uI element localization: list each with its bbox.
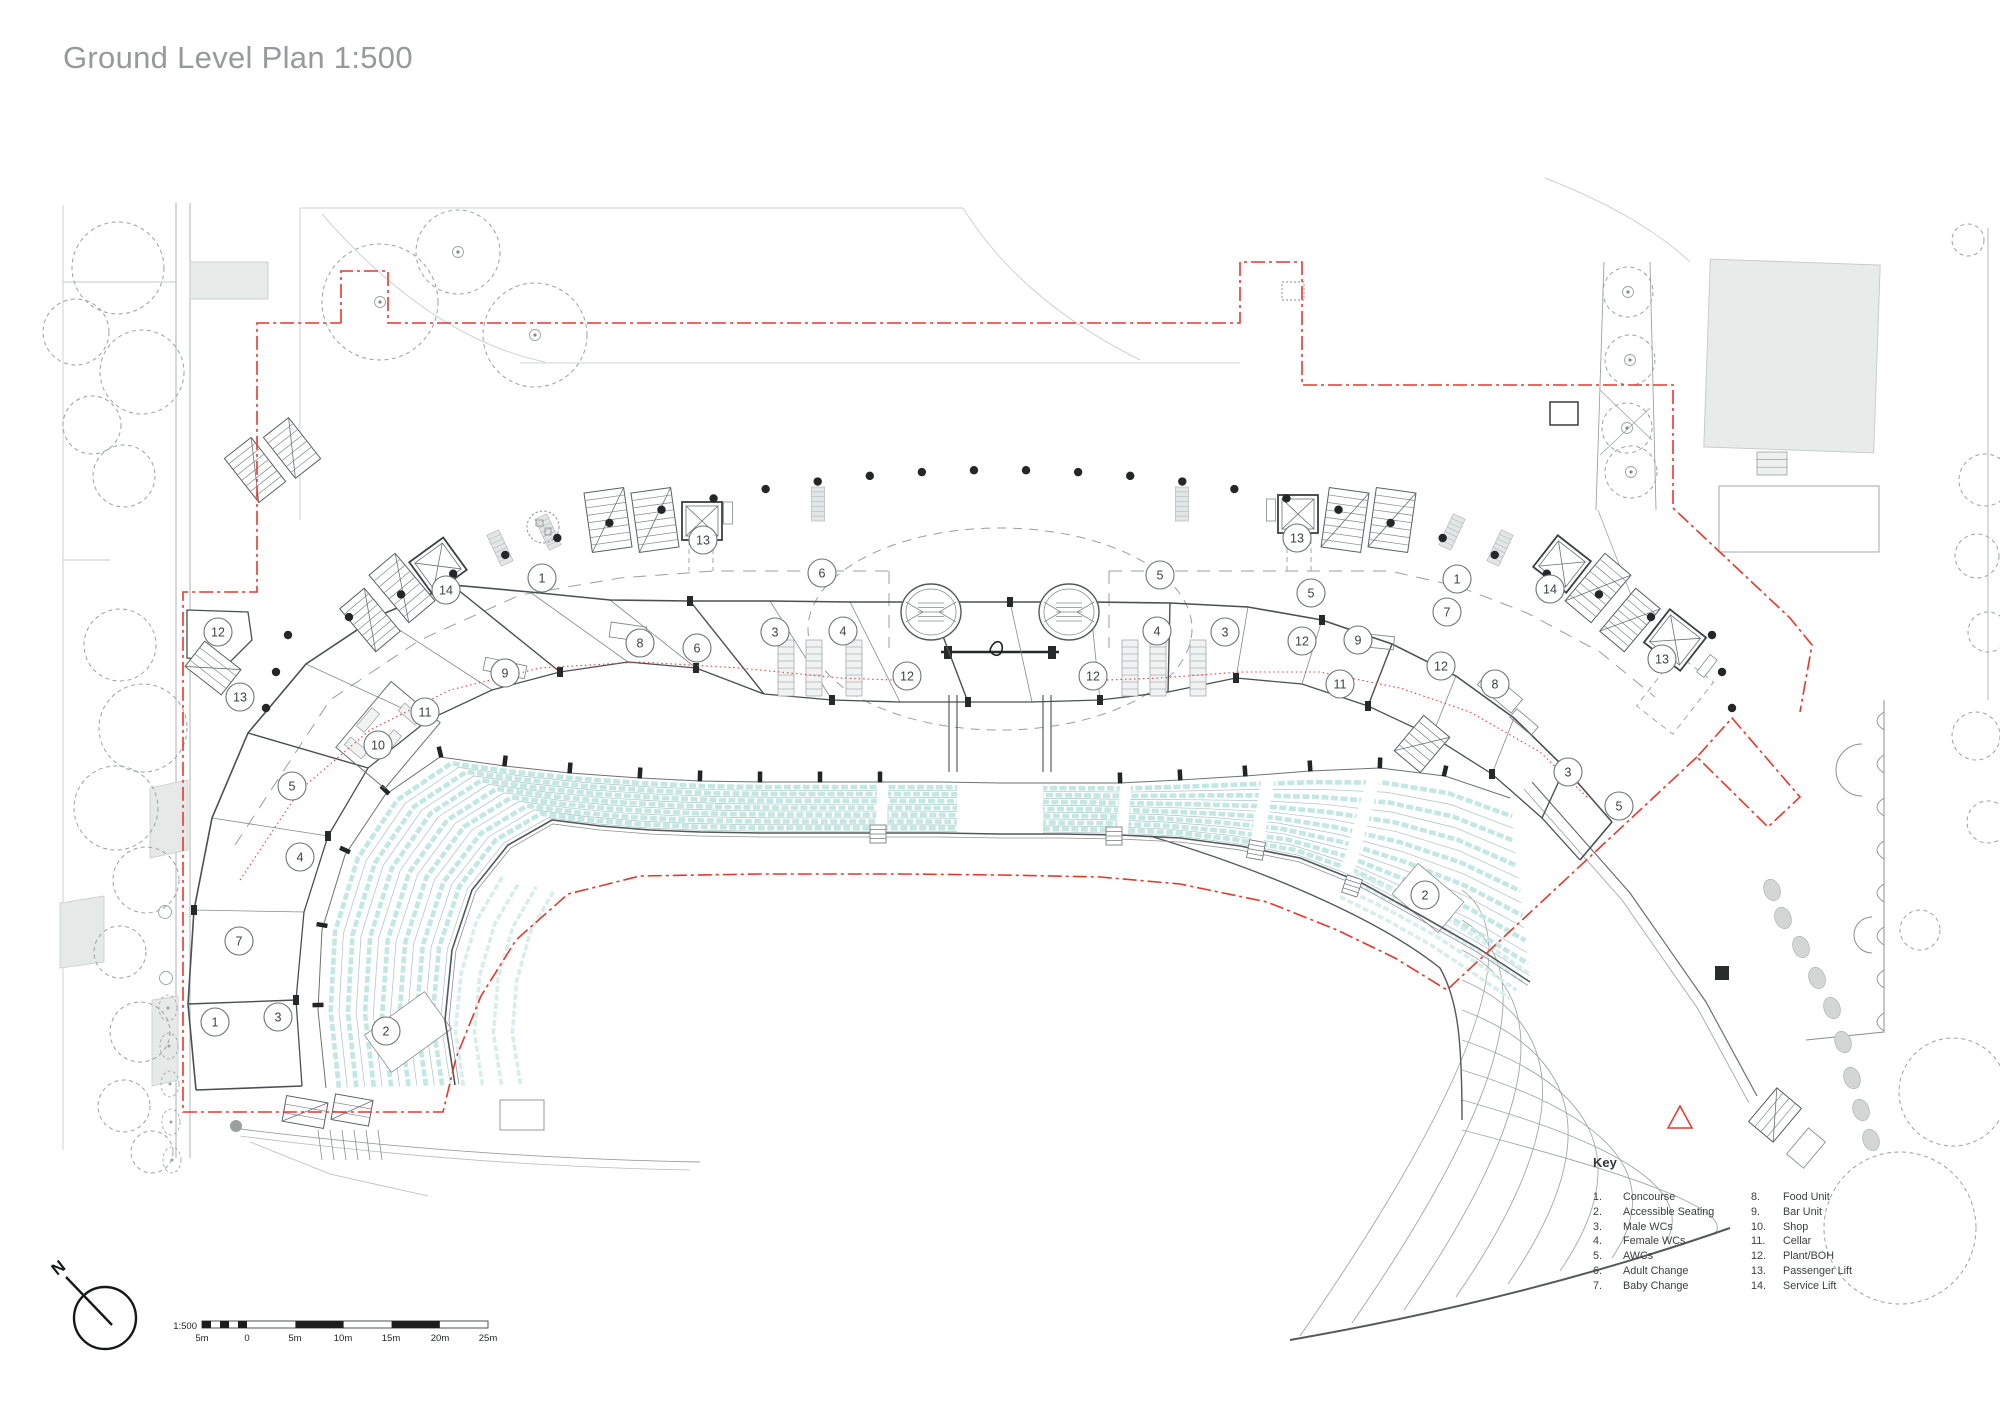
svg-text:9: 9	[502, 666, 509, 680]
key-item-label: Passenger Lift	[1783, 1264, 1893, 1279]
svg-text:12: 12	[1295, 634, 1309, 648]
svg-text:5: 5	[1157, 568, 1164, 582]
plan-marker: 12	[1079, 662, 1107, 690]
north-arrow: N	[48, 1257, 136, 1349]
plan-marker: 12	[893, 662, 921, 690]
key-item-label: Female WCs	[1623, 1234, 1751, 1249]
svg-text:13: 13	[696, 533, 710, 547]
plan-marker: 14	[1536, 575, 1564, 603]
plan-marker: 4	[1143, 617, 1171, 645]
plan-marker: 12	[1427, 652, 1455, 680]
svg-text:13: 13	[1290, 531, 1304, 545]
plan-marker: 5	[1297, 579, 1325, 607]
key-item-num: 10.	[1751, 1220, 1783, 1235]
svg-text:3: 3	[772, 625, 779, 639]
plan-marker: 10	[364, 731, 392, 759]
key-item-num: 12.	[1751, 1249, 1783, 1264]
key-heading: Key	[1593, 1155, 1893, 1170]
svg-text:25m: 25m	[479, 1333, 498, 1344]
key-list: 1.Concourse8.Food Unit2.Accessible Seati…	[1593, 1190, 1893, 1294]
svg-text:5m: 5m	[195, 1333, 208, 1344]
svg-text:8: 8	[637, 636, 644, 650]
key-item-label: AWCs	[1623, 1249, 1751, 1264]
plan-marker: 13	[226, 683, 254, 711]
svg-text:5: 5	[1616, 799, 1623, 813]
svg-text:9: 9	[1355, 633, 1362, 647]
svg-text:0: 0	[244, 1333, 249, 1344]
svg-text:14: 14	[439, 583, 453, 597]
svg-text:2: 2	[1422, 888, 1429, 902]
svg-text:12: 12	[900, 669, 914, 683]
key-item-num: 3.	[1593, 1220, 1623, 1235]
plan-marker: 6	[808, 559, 836, 587]
svg-text:14: 14	[1543, 582, 1557, 596]
svg-text:10: 10	[371, 738, 385, 752]
plan-marker: 8	[1481, 670, 1509, 698]
plan-marker: 4	[286, 843, 314, 871]
svg-text:13: 13	[1655, 652, 1669, 666]
svg-text:5m: 5m	[288, 1333, 301, 1344]
key-item-label: Service Lift	[1783, 1279, 1893, 1294]
plan-marker: 11	[411, 698, 439, 726]
key-item-label: Adult Change	[1623, 1264, 1751, 1279]
svg-text:20m: 20m	[431, 1333, 450, 1344]
plan-marker: 7	[1433, 598, 1461, 626]
key-item-num: 13.	[1751, 1264, 1783, 1279]
svg-text:1: 1	[212, 1015, 219, 1029]
svg-text:6: 6	[694, 641, 701, 655]
plan-marker: 6	[683, 634, 711, 662]
key-item-num: 1.	[1593, 1190, 1623, 1205]
key-item-label: Cellar	[1783, 1234, 1893, 1249]
svg-text:7: 7	[1444, 605, 1451, 619]
plan-marker: 12	[204, 618, 232, 646]
plan-marker: 12	[1288, 627, 1316, 655]
key-item-num: 5.	[1593, 1249, 1623, 1264]
svg-text:12: 12	[1086, 669, 1100, 683]
key-item-label: Shop	[1783, 1220, 1893, 1235]
svg-text:12: 12	[211, 625, 225, 639]
plan-marker: 3	[1554, 758, 1582, 786]
svg-text:12: 12	[1434, 659, 1448, 673]
plan-marker: 5	[1146, 561, 1174, 589]
plan-marker: 3	[761, 618, 789, 646]
scale-bar: 1:5005m05m10m15m20m25m	[173, 1321, 497, 1344]
key-item-num: 14.	[1751, 1279, 1783, 1294]
plan-marker: 13	[1283, 524, 1311, 552]
svg-text:4: 4	[1154, 624, 1161, 638]
svg-text:11: 11	[419, 705, 432, 719]
plan-marker: 13	[1648, 645, 1676, 673]
plan-marker: 5	[278, 772, 306, 800]
key-item-label: Male WCs	[1623, 1220, 1751, 1235]
svg-text:3: 3	[1565, 765, 1572, 779]
plan-marker: 13	[689, 526, 717, 554]
plan-marker: 4	[829, 617, 857, 645]
svg-text:4: 4	[297, 850, 304, 864]
key-item-num: 2.	[1593, 1205, 1623, 1220]
key-item-num: 6.	[1593, 1264, 1623, 1279]
svg-text:3: 3	[275, 1010, 282, 1024]
plan-marker: 2	[1411, 881, 1439, 909]
svg-text:4: 4	[840, 624, 847, 638]
key-panel: Key 1.Concourse8.Food Unit2.Accessible S…	[1593, 1155, 1893, 1294]
key-item-label: Baby Change	[1623, 1279, 1751, 1294]
svg-text:1:500: 1:500	[173, 1321, 197, 1332]
plan-marker: 5	[1605, 792, 1633, 820]
key-item-label: Bar Unit	[1783, 1205, 1893, 1220]
plan-marker: 14	[432, 576, 460, 604]
svg-text:15m: 15m	[382, 1333, 401, 1344]
svg-text:6: 6	[819, 566, 826, 580]
plan-marker: 11	[1326, 670, 1354, 698]
key-item-num: 9.	[1751, 1205, 1783, 1220]
plan-marker: 9	[1344, 626, 1372, 654]
key-item-num: 7.	[1593, 1279, 1623, 1294]
key-item-label: Accessible Seating	[1623, 1205, 1751, 1220]
svg-text:11: 11	[1334, 677, 1347, 691]
plan-marker: 1	[1443, 565, 1471, 593]
plan-marker: 3	[264, 1003, 292, 1031]
floor-plan-sheet: Ground Level Plan 1:500 1213547132101198…	[0, 0, 2000, 1414]
plan-marker: 8	[626, 629, 654, 657]
svg-text:2: 2	[383, 1024, 390, 1038]
plan-marker: 1	[201, 1008, 229, 1036]
plan-marker: 7	[225, 927, 253, 955]
svg-text:13: 13	[233, 690, 247, 704]
svg-text:1: 1	[1454, 572, 1461, 586]
svg-text:N: N	[48, 1257, 69, 1280]
key-item-num: 11.	[1751, 1234, 1783, 1249]
svg-text:5: 5	[289, 779, 296, 793]
svg-text:5: 5	[1308, 586, 1315, 600]
svg-text:1: 1	[539, 571, 546, 585]
plan-marker: 9	[491, 659, 519, 687]
key-item-label: Concourse	[1623, 1190, 1751, 1205]
svg-text:8: 8	[1492, 677, 1499, 691]
svg-text:7: 7	[236, 934, 243, 948]
plan-marker: 3	[1211, 618, 1239, 646]
svg-text:10m: 10m	[334, 1333, 353, 1344]
key-item-num: 8.	[1751, 1190, 1783, 1205]
plan-marker: 1	[528, 564, 556, 592]
key-item-label: Food Unit	[1783, 1190, 1893, 1205]
key-item-label: Plant/BOH	[1783, 1249, 1893, 1264]
plan-marker: 2	[372, 1017, 400, 1045]
key-item-num: 4.	[1593, 1234, 1623, 1249]
svg-text:3: 3	[1222, 625, 1229, 639]
